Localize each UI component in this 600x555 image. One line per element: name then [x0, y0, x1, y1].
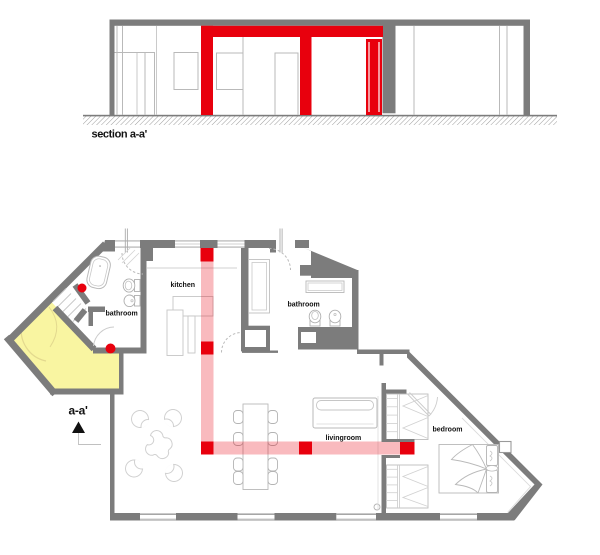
- svg-text:livingroom: livingroom: [326, 435, 362, 442]
- svg-text:a-a': a-a': [69, 404, 88, 418]
- svg-text:kitchen: kitchen: [171, 282, 196, 289]
- svg-text:bathroom: bathroom: [106, 311, 138, 318]
- svg-text:bathroom: bathroom: [288, 302, 320, 309]
- svg-text:bedroom: bedroom: [433, 427, 463, 434]
- svg-text:section a-a': section a-a': [92, 129, 148, 141]
